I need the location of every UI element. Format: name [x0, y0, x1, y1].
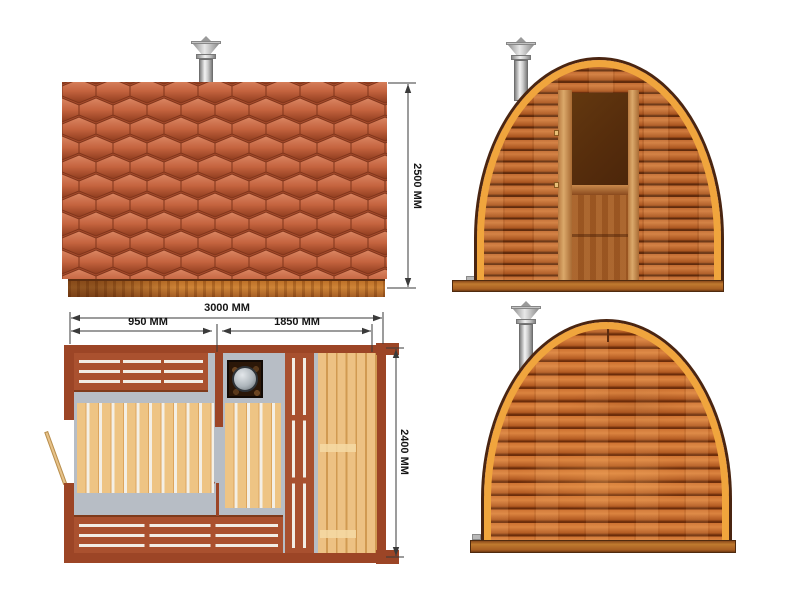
plan-wall-right [377, 345, 386, 563]
dimension-label-left-room-width: 950 MM [128, 316, 168, 328]
side-base-skid [68, 279, 385, 297]
front-base-platform [452, 280, 724, 292]
plan-end-deck-planks [318, 353, 377, 553]
plan-wall-left-upper [64, 345, 74, 420]
rear-elevation-view [481, 319, 732, 541]
plan-partition-lower [216, 483, 219, 516]
bench-groove [79, 360, 203, 363]
dimension-label-depth: 2400 MM [398, 429, 410, 475]
chimney-cap-lid [191, 41, 221, 44]
plan-wall-end-cap-bottom [376, 550, 399, 564]
plan-wall-bottom [64, 553, 386, 563]
plank-joint [320, 530, 356, 538]
bench-groove [79, 534, 278, 537]
bench-groove [79, 524, 278, 527]
bench-groove [79, 370, 203, 373]
plan-wall-end-cap-top [376, 343, 399, 355]
chimney-icon [190, 36, 222, 83]
dimension-label-total-width: 3000 MM [204, 302, 250, 314]
plan-floor-planks-left-room [77, 403, 214, 493]
stove-flue-circle [232, 366, 258, 392]
chimney-pipe [199, 59, 213, 83]
bench-groove [79, 380, 203, 383]
side-elevation-view [62, 82, 387, 279]
bench-groove [292, 358, 295, 548]
sauna-technical-drawing: 2500 MM 3000 MM 950 MM 1850 MM 2400 MM [0, 0, 800, 600]
chimney-cap-cone [508, 45, 534, 55]
plan-wall-left-lower [64, 483, 74, 563]
plan-wall-top [64, 345, 386, 353]
plan-side-bench-vertical [285, 353, 314, 553]
plan-exterior-door-leaf [44, 431, 67, 485]
plan-bench-bottom [74, 515, 283, 553]
chimney-cap-cone [513, 309, 539, 319]
plan-floor-planks-right-room [225, 403, 281, 508]
chimney-cap-lid [506, 42, 536, 45]
plan-bench-top [74, 353, 208, 392]
bench-groove [79, 544, 278, 547]
front-elevation-view [474, 57, 724, 281]
plank-joint [320, 444, 356, 452]
dimension-label-side-height: 2500 MM [411, 163, 423, 209]
chimney-cap-lid [511, 306, 541, 309]
rear-base-platform [470, 540, 736, 553]
bench-groove [303, 358, 306, 548]
plan-partition-wall [215, 353, 223, 427]
shingle-roof-texture [62, 82, 387, 279]
dimension-label-right-room-width: 1850 MM [274, 316, 320, 328]
chimney-cap-cone [193, 44, 219, 54]
